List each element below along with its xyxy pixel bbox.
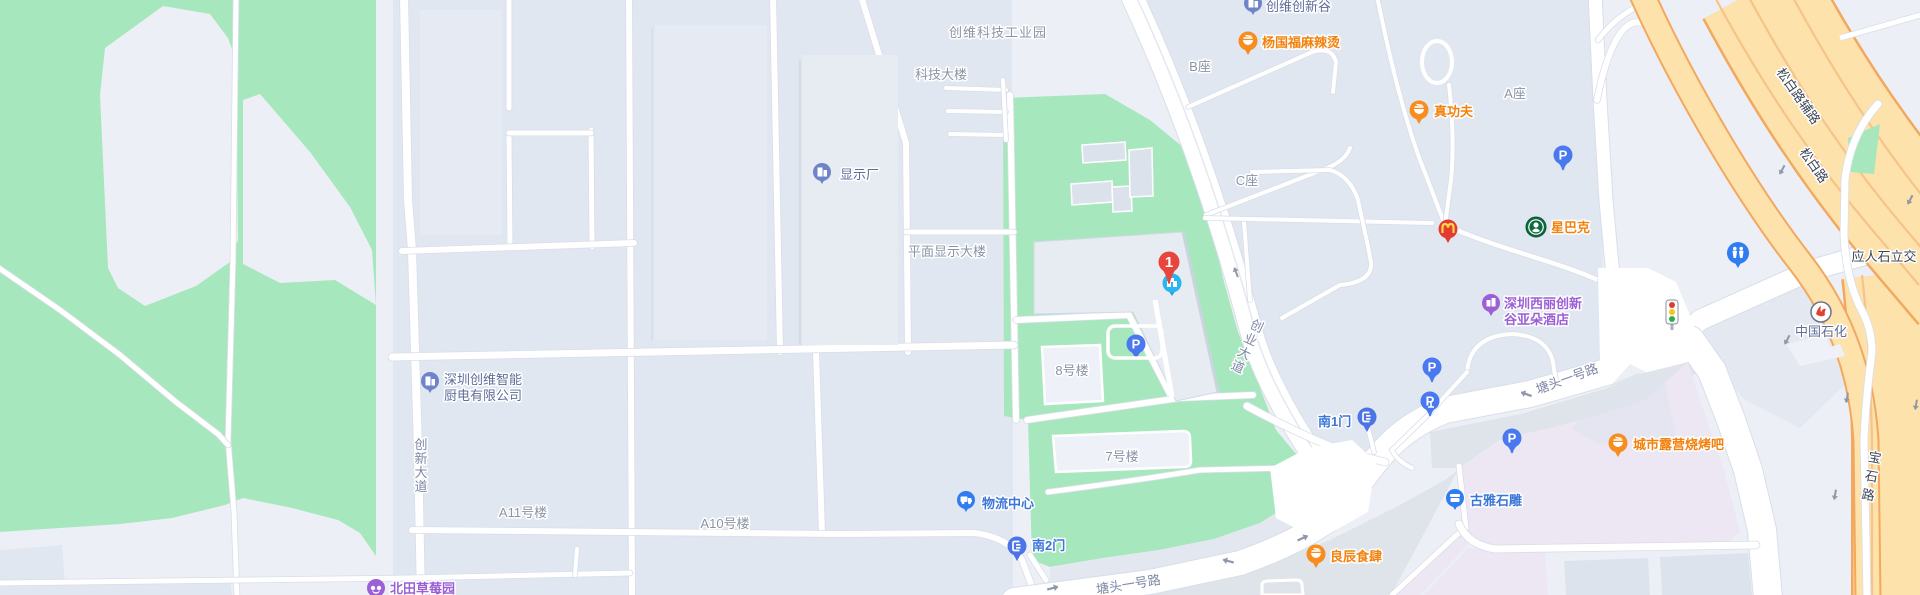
- svg-text:1: 1: [1165, 254, 1173, 271]
- svg-text:南2门: 南2门: [1032, 538, 1065, 553]
- svg-text:古雅石雕: 古雅石雕: [1470, 493, 1522, 508]
- svg-text:物流中心: 物流中心: [982, 496, 1034, 511]
- svg-text:深圳创维智能厨电有限公司: 深圳创维智能厨电有限公司: [444, 372, 522, 403]
- svg-text:C座: C座: [1236, 173, 1258, 188]
- svg-text:科技大楼: 科技大楼: [915, 67, 967, 82]
- svg-text:显示厂: 显示厂: [840, 167, 879, 182]
- svg-text:A11号楼: A11号楼: [499, 505, 547, 520]
- svg-text:8号楼: 8号楼: [1055, 363, 1088, 378]
- svg-text:创维创新谷: 创维创新谷: [1266, 0, 1331, 14]
- svg-text:A10号楼: A10号楼: [700, 516, 749, 531]
- svg-text:良辰食肆: 良辰食肆: [1330, 549, 1382, 564]
- svg-text:北田草莓园: 北田草莓园: [390, 581, 455, 595]
- svg-text:南1门: 南1门: [1318, 414, 1351, 429]
- svg-text:中国石化: 中国石化: [1795, 324, 1847, 339]
- svg-text:杨国福麻辣烫: 杨国福麻辣烫: [1262, 35, 1341, 50]
- svg-text:创维科技工业园: 创维科技工业园: [949, 25, 1047, 40]
- svg-text:平面显示大楼: 平面显示大楼: [908, 244, 986, 259]
- svg-text:真功夫: 真功夫: [1434, 104, 1474, 119]
- svg-text:A座: A座: [1504, 86, 1526, 101]
- svg-text:7号楼: 7号楼: [1105, 449, 1138, 464]
- svg-text:B座: B座: [1189, 59, 1211, 74]
- svg-text:城市露营烧烤吧: 城市露营烧烤吧: [1633, 437, 1724, 452]
- svg-text:创新大道: 创新大道: [414, 437, 427, 494]
- svg-text:星巴克: 星巴克: [1551, 220, 1590, 235]
- svg-text:应人石立交: 应人石立交: [1851, 249, 1916, 264]
